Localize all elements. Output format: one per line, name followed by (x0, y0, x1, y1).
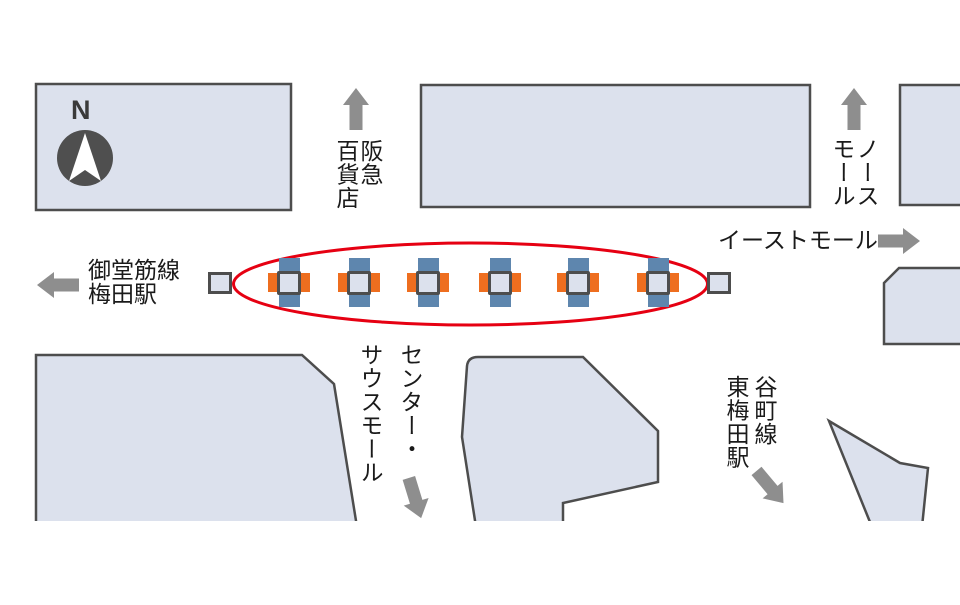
label-line: 谷町線 (750, 375, 778, 469)
pillar-icon (557, 258, 599, 307)
label-line: 梅田駅 (88, 282, 180, 306)
pillar-core (646, 271, 670, 295)
map-canvas: N 阪急 百貨店 ノース モール イーストモール 御堂筋線 梅田駅 センター・ … (0, 0, 960, 605)
label-hankyu-department-store: 阪急 百貨店 (334, 139, 382, 210)
end-square-icon (707, 272, 731, 294)
label-center-south-mall: センター・ サウスモール (350, 343, 430, 484)
label-tanimachi-higashi-umeda-station: 谷町線 東梅田駅 (721, 375, 778, 469)
label-line: ノース (854, 137, 878, 208)
label-line: 阪急 (358, 139, 382, 210)
label-line: 東梅田駅 (722, 375, 750, 469)
pillar-core (416, 271, 440, 295)
map-bottom-crop (0, 521, 960, 605)
pillar-icon (268, 258, 310, 307)
label-east-mall: イーストモール (718, 228, 878, 252)
pillar-icon (479, 258, 521, 307)
pillar-icon (637, 258, 679, 307)
pillar-icon (338, 258, 380, 307)
label-line: センター・ (390, 343, 430, 484)
label-midosuji-umeda-station: 御堂筋線 梅田駅 (88, 258, 180, 306)
pillar-core (277, 271, 301, 295)
pillar-core (566, 271, 590, 295)
pillar-core (488, 271, 512, 295)
pillar-core (347, 271, 371, 295)
label-line: 御堂筋線 (88, 258, 180, 282)
pillar-icon (407, 258, 449, 307)
end-square-icon (208, 272, 232, 294)
label-line: モール (830, 137, 854, 208)
label-line: サウスモール (350, 343, 390, 484)
label-north-mall: ノース モール (830, 137, 878, 208)
compass-north-label: N (71, 95, 91, 126)
label-line: 百貨店 (334, 139, 358, 210)
